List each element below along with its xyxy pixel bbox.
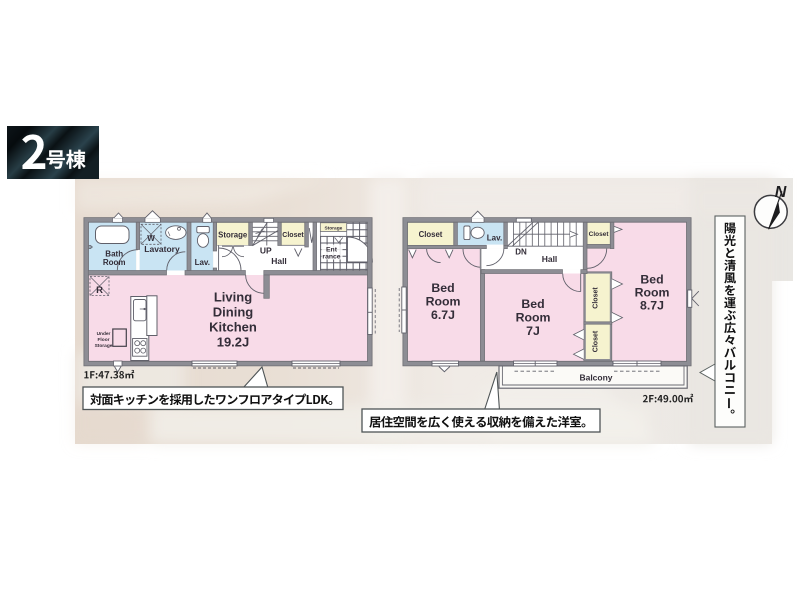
svg-text:Kitchen: Kitchen — [209, 320, 257, 335]
svg-text:Living: Living — [214, 290, 252, 305]
svg-text:Room: Room — [516, 311, 551, 325]
svg-text:Balcony: Balcony — [579, 373, 612, 383]
svg-text:UP: UP — [260, 246, 272, 256]
svg-text:DN: DN — [515, 248, 527, 257]
svg-text:N: N — [775, 184, 787, 201]
svg-text:19.2J: 19.2J — [217, 335, 250, 350]
svg-text:Hall: Hall — [542, 254, 558, 264]
svg-text:Lav.: Lav. — [487, 234, 502, 243]
svg-text:R: R — [96, 285, 103, 296]
svg-text:Bed: Bed — [431, 281, 454, 295]
svg-text:8.7J: 8.7J — [640, 299, 664, 313]
svg-text:Floor: Floor — [98, 337, 110, 343]
svg-text:Room: Room — [103, 258, 126, 267]
svg-text:Room: Room — [426, 295, 461, 309]
svg-text:Closet: Closet — [282, 232, 304, 239]
svg-text:Storage: Storage — [95, 343, 113, 349]
svg-text:W: W — [147, 234, 155, 243]
svg-text:Bed: Bed — [640, 273, 663, 287]
svg-text:Hall: Hall — [271, 256, 287, 266]
svg-text:Bed: Bed — [521, 297, 544, 311]
svg-text:7J: 7J — [526, 324, 540, 338]
svg-text:6.7J: 6.7J — [431, 308, 455, 322]
svg-text:Closet: Closet — [593, 330, 600, 352]
svg-text:Dining: Dining — [213, 305, 253, 320]
svg-text:Storage: Storage — [218, 230, 248, 239]
svg-text:Room: Room — [635, 286, 670, 300]
svg-text:Lav.: Lav. — [195, 258, 210, 267]
svg-text:Closet: Closet — [419, 230, 443, 239]
svg-text:Closet: Closet — [589, 231, 610, 238]
svg-text:rance: rance — [322, 254, 340, 261]
svg-text:Closet: Closet — [593, 287, 600, 309]
svg-text:Storage: Storage — [324, 226, 342, 232]
svg-text:Lavatory: Lavatory — [144, 244, 180, 254]
svg-text:Under: Under — [97, 331, 111, 337]
svg-text:Ent: Ent — [326, 247, 338, 254]
